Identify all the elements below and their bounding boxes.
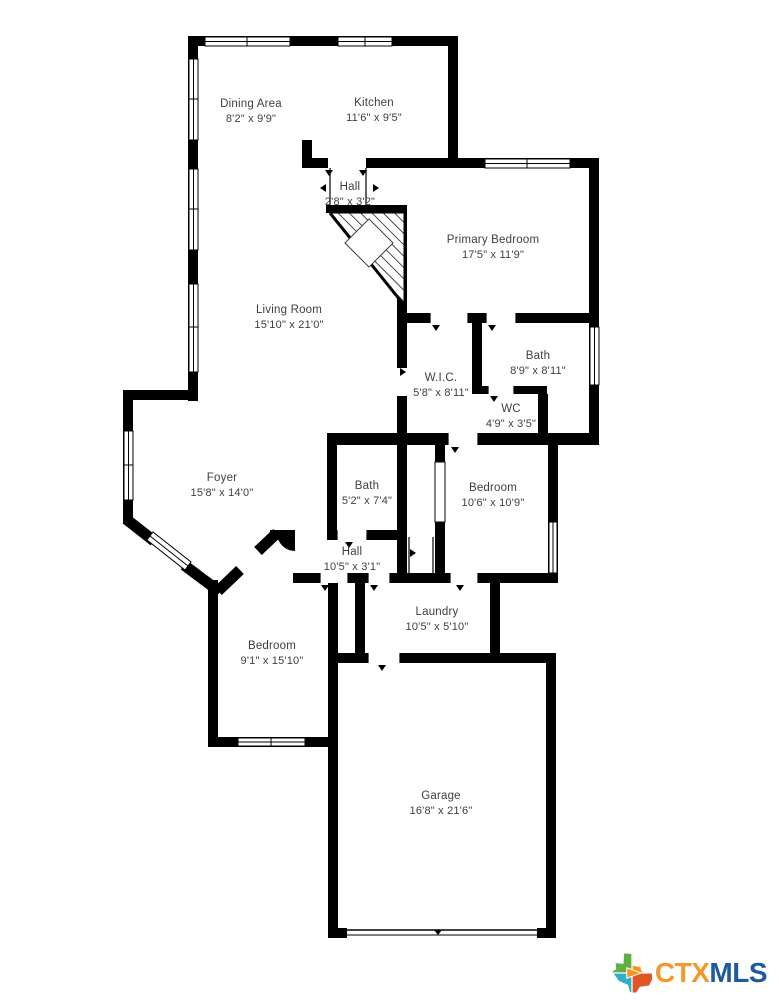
room-label-laundry: Laundry 10'5" x 5'10" bbox=[406, 605, 469, 635]
floorplan-canvas: Dining Area 8'2" x 9'9" Kitchen 11'6" x … bbox=[0, 0, 779, 1008]
room-label-bedroom-right: Bedroom 10'6" x 10'9" bbox=[462, 481, 525, 511]
room-dims: 10'5" x 3'1" bbox=[324, 560, 381, 575]
room-name: Hall bbox=[325, 180, 375, 195]
room-dims: 5'8" x 8'11" bbox=[413, 386, 469, 401]
stairs bbox=[330, 213, 404, 305]
room-label-hall-lower: Hall 10'5" x 3'1" bbox=[324, 545, 381, 575]
texas-icon bbox=[611, 950, 653, 996]
logo-text-ctx: CTX bbox=[655, 950, 710, 996]
room-dims: 11'6" x 9'5" bbox=[346, 111, 402, 126]
room-label-bedroom-left: Bedroom 9'1" x 15'10" bbox=[241, 639, 304, 669]
room-name: Living Room bbox=[254, 303, 323, 318]
room-label-foyer: Foyer 15'8" x 14'0" bbox=[191, 471, 254, 501]
room-label-bath-upper: Bath 8'9" x 8'11" bbox=[510, 349, 566, 379]
room-name: WC bbox=[486, 402, 536, 417]
ctxmls-logo: CTXMLS bbox=[611, 950, 767, 996]
room-dims: 8'9" x 8'11" bbox=[510, 364, 566, 379]
room-name: W.I.C. bbox=[413, 371, 469, 386]
room-label-wic: W.I.C. 5'8" x 8'11" bbox=[413, 371, 469, 401]
room-name: Bath bbox=[510, 349, 566, 364]
room-label-primary-bedroom: Primary Bedroom 17'5" x 11'9" bbox=[447, 233, 539, 263]
room-label-dining-area: Dining Area 8'2" x 9'9" bbox=[220, 97, 282, 127]
logo-text-mls: MLS bbox=[709, 950, 767, 996]
room-dims: 5'2" x 7'4" bbox=[342, 494, 392, 509]
room-dims: 2'8" x 3'2" bbox=[325, 195, 375, 210]
room-label-bath-lower: Bath 5'2" x 7'4" bbox=[342, 479, 392, 509]
room-dims: 8'2" x 9'9" bbox=[220, 112, 282, 127]
room-dims: 17'5" x 11'9" bbox=[447, 248, 539, 263]
garage-door bbox=[347, 929, 537, 937]
room-dims: 10'6" x 10'9" bbox=[462, 496, 525, 511]
room-dims: 9'1" x 15'10" bbox=[241, 654, 304, 669]
room-name: Foyer bbox=[191, 471, 254, 486]
room-dims: 10'5" x 5'10" bbox=[406, 620, 469, 635]
room-name: Kitchen bbox=[346, 96, 402, 111]
room-label-wc: WC 4'9" x 3'5" bbox=[486, 402, 536, 432]
room-name: Dining Area bbox=[220, 97, 282, 112]
front-door-swing bbox=[277, 533, 295, 551]
room-dims: 15'8" x 14'0" bbox=[191, 486, 254, 501]
room-name: Primary Bedroom bbox=[447, 233, 539, 248]
diagonal-walls bbox=[126, 519, 277, 592]
room-label-kitchen: Kitchen 11'6" x 9'5" bbox=[346, 96, 402, 126]
room-dims: 15'10" x 21'0" bbox=[254, 318, 323, 333]
room-label-living-room: Living Room 15'10" x 21'0" bbox=[254, 303, 323, 333]
room-name: Bath bbox=[342, 479, 392, 494]
room-name: Bedroom bbox=[462, 481, 525, 496]
room-label-garage: Garage 16'8" x 21'6" bbox=[410, 789, 473, 819]
room-name: Bedroom bbox=[241, 639, 304, 654]
room-name: Hall bbox=[324, 545, 381, 560]
room-label-hall-upper: Hall 2'8" x 3'2" bbox=[325, 180, 375, 210]
room-name: Laundry bbox=[406, 605, 469, 620]
room-name: Garage bbox=[410, 789, 473, 804]
room-dims: 4'9" x 3'5" bbox=[486, 417, 536, 432]
room-dims: 16'8" x 21'6" bbox=[410, 804, 473, 819]
